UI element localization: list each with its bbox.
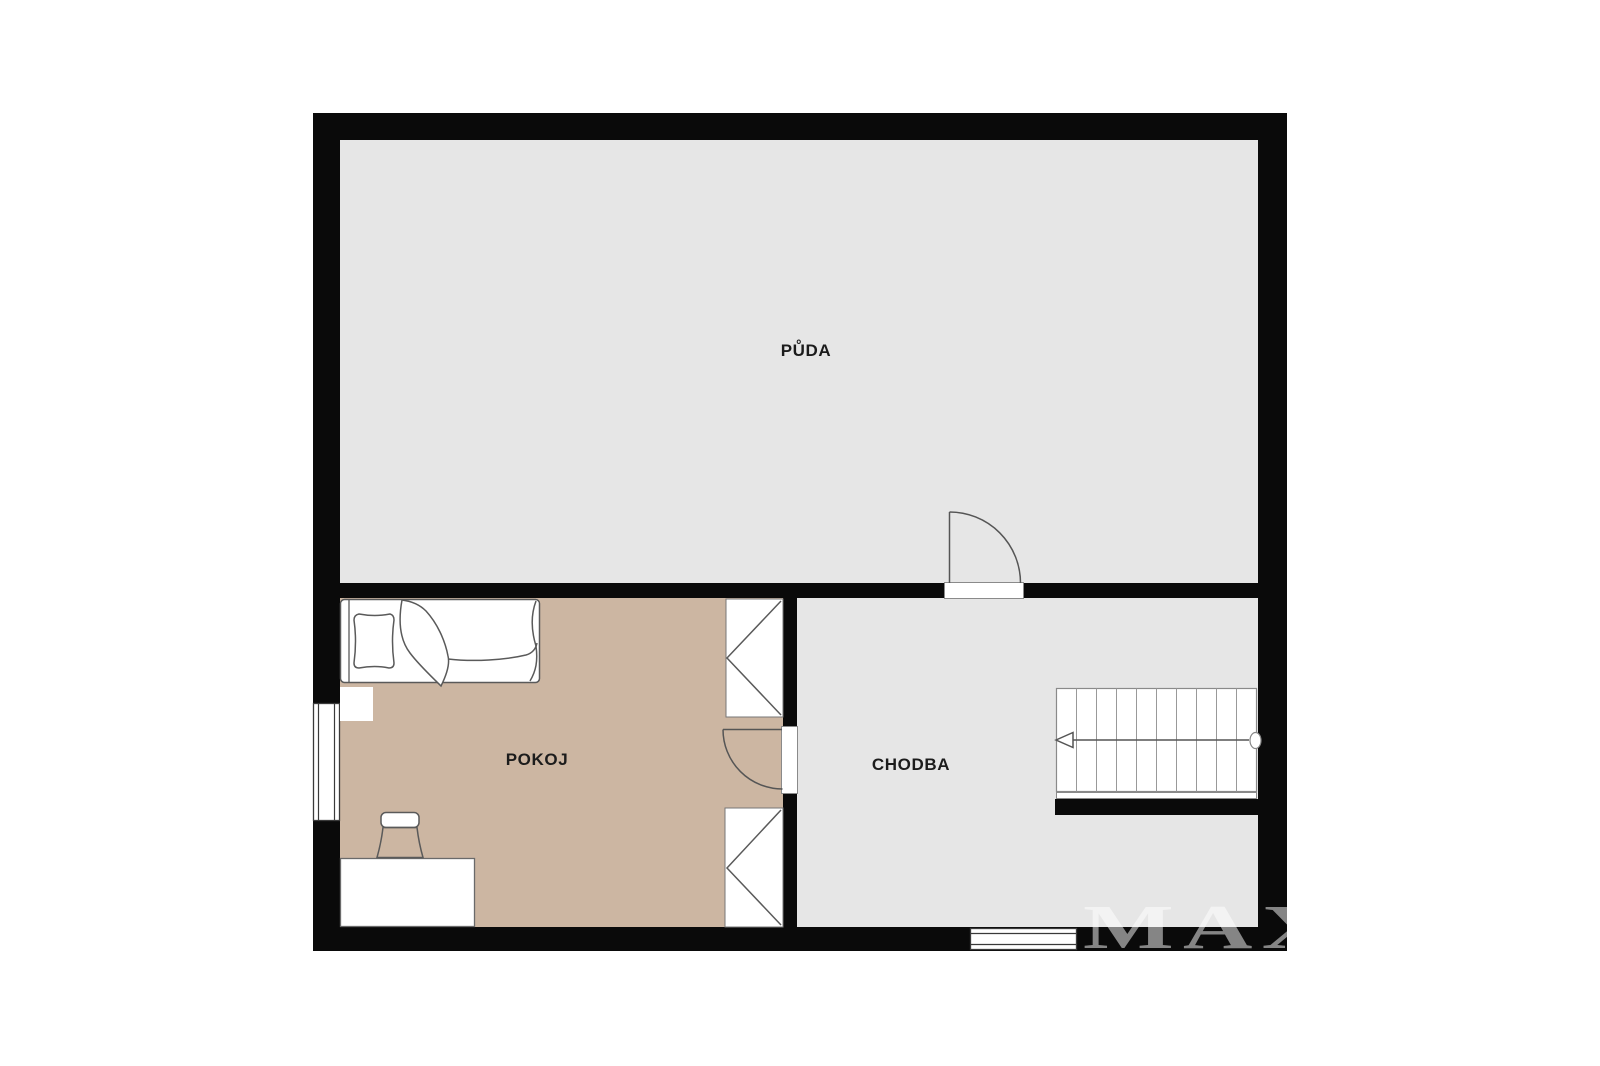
outer-wall-left [313,113,340,951]
door-opening-pokoj-chodba [781,726,798,794]
room-label-chodba: CHODBA [872,755,950,775]
room-label-pokoj: POKOJ [506,750,569,770]
door-opening-puda-chodba [944,582,1024,599]
room-label-puda: PŮDA [781,341,832,361]
room-puda-floor [340,140,1258,583]
outer-wall-bottom [313,927,1287,951]
room-chodba-floor [797,598,1258,927]
interior-wall-stair-stub [1055,799,1258,815]
floor-plan-canvas: PŮDA POKOJ CHODBA MAX [0,0,1600,1066]
outer-wall-top [313,113,1287,140]
interior-wall-horizontal [340,583,1258,598]
outer-wall-right [1258,113,1287,951]
